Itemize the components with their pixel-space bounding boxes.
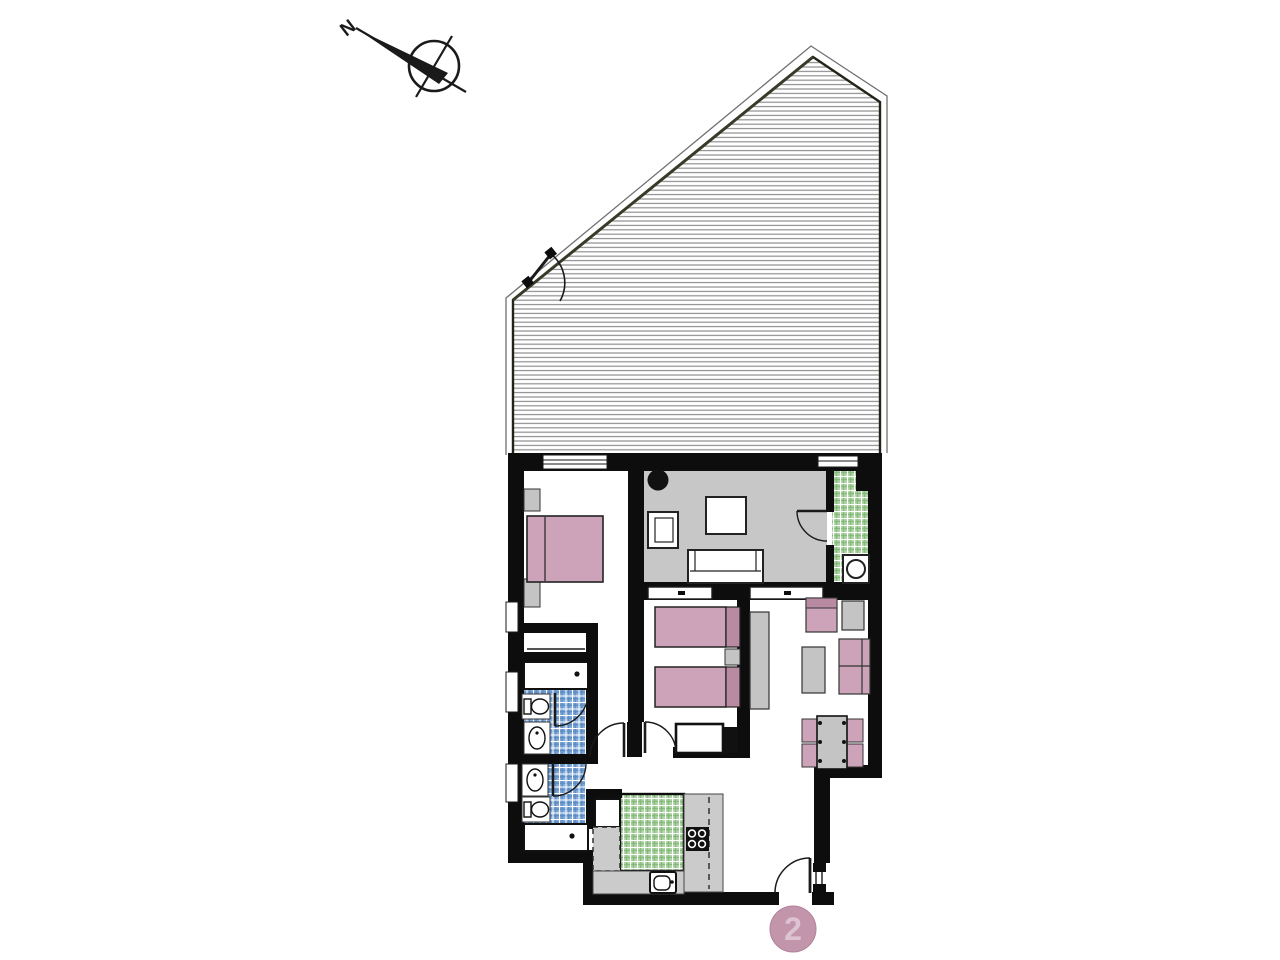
nightstand — [524, 489, 540, 511]
unit-badge: 2 — [770, 906, 816, 952]
sink — [524, 722, 550, 754]
sink-tap — [533, 773, 536, 776]
window-frame — [506, 602, 518, 632]
window-frame — [506, 764, 518, 802]
double-bed — [527, 516, 603, 582]
bathtub-drain — [574, 671, 579, 676]
sofa — [688, 550, 763, 583]
loveseat — [839, 639, 870, 694]
bed-headboard — [726, 667, 740, 707]
toilet-bowl — [532, 699, 549, 714]
utility-terrace-window — [818, 456, 858, 467]
entry-door — [775, 858, 810, 893]
side-table — [842, 601, 864, 630]
table-dot — [842, 721, 846, 725]
table-dot — [842, 740, 846, 744]
bed-headboard — [726, 607, 740, 647]
wall-door-stub — [627, 722, 642, 757]
compass-north-arrow: N — [336, 16, 466, 97]
door-swing-arc — [775, 858, 810, 893]
bedroom2-door — [645, 722, 676, 753]
sink-tap — [670, 880, 674, 884]
utility-room — [843, 555, 869, 583]
table-dot — [842, 759, 846, 763]
counter-left — [593, 827, 620, 871]
bedroom1-terrace-window — [543, 455, 607, 469]
dining-set — [802, 716, 863, 769]
nightstand — [524, 579, 540, 607]
door-swing-arc — [645, 722, 676, 753]
toilet-bowl — [532, 802, 549, 817]
bathtub-drain — [569, 833, 574, 838]
sofa-body — [688, 550, 763, 583]
sink-basin — [527, 769, 543, 791]
table-dot — [818, 721, 822, 725]
wall-bottom-right-stub — [812, 892, 834, 905]
entry-jamb-top — [813, 863, 826, 872]
tv-unit — [802, 647, 825, 693]
terrace — [506, 46, 887, 455]
window-frame — [543, 455, 607, 469]
floor-plan-page: N — [0, 0, 1280, 960]
wall-inset-tick — [784, 591, 791, 595]
dining-area — [750, 598, 870, 769]
washing-machine-drum — [847, 560, 865, 578]
wall-inset-tick — [678, 591, 685, 595]
nightstand — [725, 649, 740, 665]
bathtub — [524, 824, 588, 851]
wall-between-bathrooms — [508, 754, 598, 764]
toilet-tank — [524, 802, 531, 817]
sink — [522, 764, 548, 796]
compass-north-label: N — [336, 16, 360, 41]
sink-basin — [529, 727, 545, 749]
dining-chair — [802, 744, 818, 767]
dining-chair — [847, 719, 863, 742]
dining-chair — [802, 719, 818, 742]
floor-plan-drawing: N — [0, 0, 1280, 960]
closet-niche — [526, 634, 586, 652]
dresser — [676, 724, 723, 753]
toilet-tank — [524, 699, 531, 714]
wardrobe — [750, 612, 769, 709]
wall-closet-bottom — [508, 652, 598, 662]
dining-chair — [847, 744, 863, 767]
wall-living-utility-lower — [826, 545, 834, 585]
wall-bedroom1-bottom — [508, 623, 598, 633]
toilet — [522, 797, 550, 822]
kitchen-sink — [650, 872, 676, 893]
coffee-table — [706, 497, 746, 534]
stove — [686, 827, 709, 851]
bedroom-1 — [524, 489, 603, 607]
sink-basin — [654, 876, 670, 890]
armchair-back — [806, 598, 837, 608]
table-dot — [818, 740, 822, 744]
table-dot — [818, 759, 822, 763]
single-bed — [655, 667, 726, 707]
wall-right — [868, 453, 882, 778]
round-table — [648, 470, 669, 491]
compass-needle — [357, 29, 448, 84]
kitchen-floor — [620, 794, 684, 871]
wall-entry-vertical — [814, 778, 830, 863]
window-frame — [506, 672, 518, 712]
single-bed — [655, 607, 726, 647]
fridge — [595, 799, 620, 827]
bedroom-2 — [590, 607, 740, 757]
dresser-end-unit — [722, 727, 738, 753]
toilet — [522, 694, 550, 719]
sink-tap — [535, 731, 538, 734]
left-wall-windows — [506, 602, 518, 802]
entry-jamb-bottom — [813, 884, 826, 893]
unit-badge-number: 2 — [784, 911, 802, 947]
